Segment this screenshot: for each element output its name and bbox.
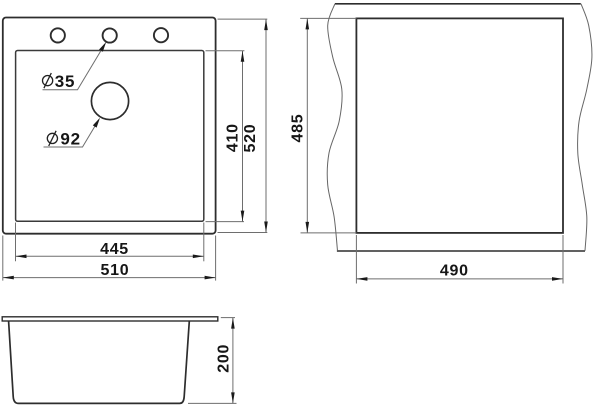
svg-text:490: 490 — [440, 263, 469, 280]
svg-text:510: 510 — [101, 262, 130, 279]
svg-text:410: 410 — [225, 123, 242, 152]
svg-text:445: 445 — [100, 241, 129, 258]
svg-text:520: 520 — [242, 124, 259, 153]
svg-text:35: 35 — [55, 72, 76, 91]
svg-text:92: 92 — [60, 130, 81, 149]
svg-text:200: 200 — [215, 344, 232, 373]
svg-text:485: 485 — [290, 114, 307, 143]
